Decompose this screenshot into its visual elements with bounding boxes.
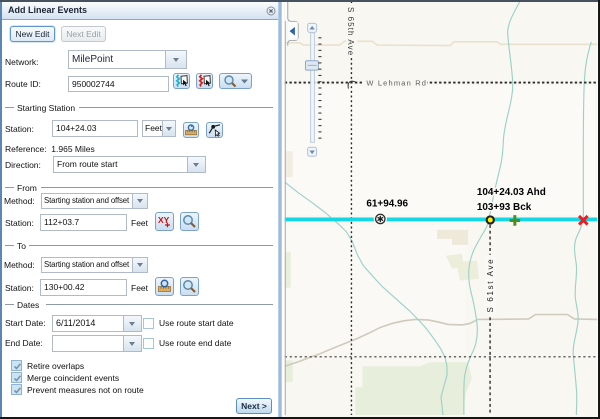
svg-text:104+24.03 Ahd: 104+24.03 Ahd xyxy=(477,187,546,198)
svg-text:W Lehman Rd: W Lehman Rd xyxy=(366,79,427,88)
svg-text:S 65th Ave: S 65th Ave xyxy=(346,7,355,56)
svg-text:S 61st Ave: S 61st Ave xyxy=(486,258,495,313)
svg-text:61+94.96: 61+94.96 xyxy=(366,199,408,210)
svg-text:103+93 Bck: 103+93 Bck xyxy=(477,202,532,213)
